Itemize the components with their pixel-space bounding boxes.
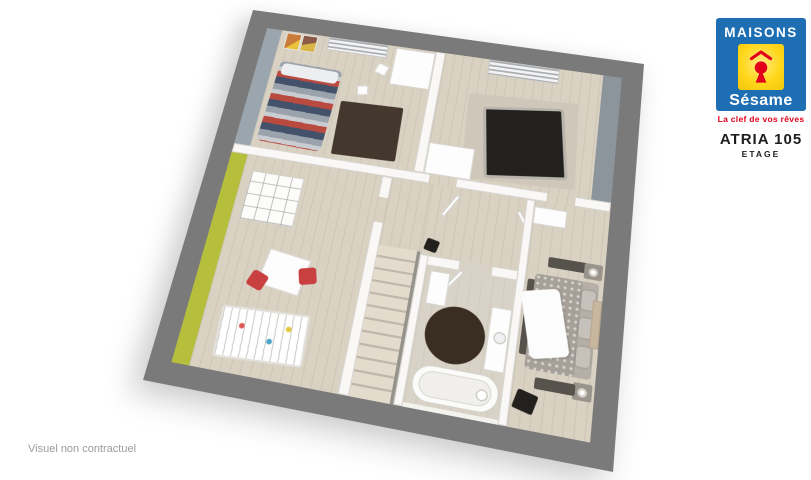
master-nightstand (584, 263, 604, 282)
bedroom1-stool (357, 86, 368, 95)
model-name: ATRIA 105 (706, 131, 811, 148)
brand-tagline: La clef de vos rêves (706, 114, 811, 124)
master-bed-pillow-3 (575, 346, 591, 369)
keyhole-icon (746, 49, 776, 85)
master-lamp-icon (588, 267, 598, 277)
master-lamp-icon-2 (577, 387, 588, 398)
maisons-wordmark: MAISONS (716, 25, 806, 40)
floor-plan-3d (143, 10, 644, 472)
bedroom2-bed (483, 107, 568, 181)
logo-yellow-box (738, 44, 784, 90)
master-bed (524, 273, 599, 380)
kids-red-chair-2 (298, 267, 316, 285)
sesame-wordmark: Sésame (716, 92, 806, 110)
bedroom1-desk (389, 48, 436, 90)
brand-logo: MAISONS Sésame (716, 18, 806, 111)
level-label: ETAGE (706, 149, 811, 159)
bedroom1-rug (331, 101, 404, 162)
disclaimer-note: Visuel non contractuel (28, 443, 136, 455)
